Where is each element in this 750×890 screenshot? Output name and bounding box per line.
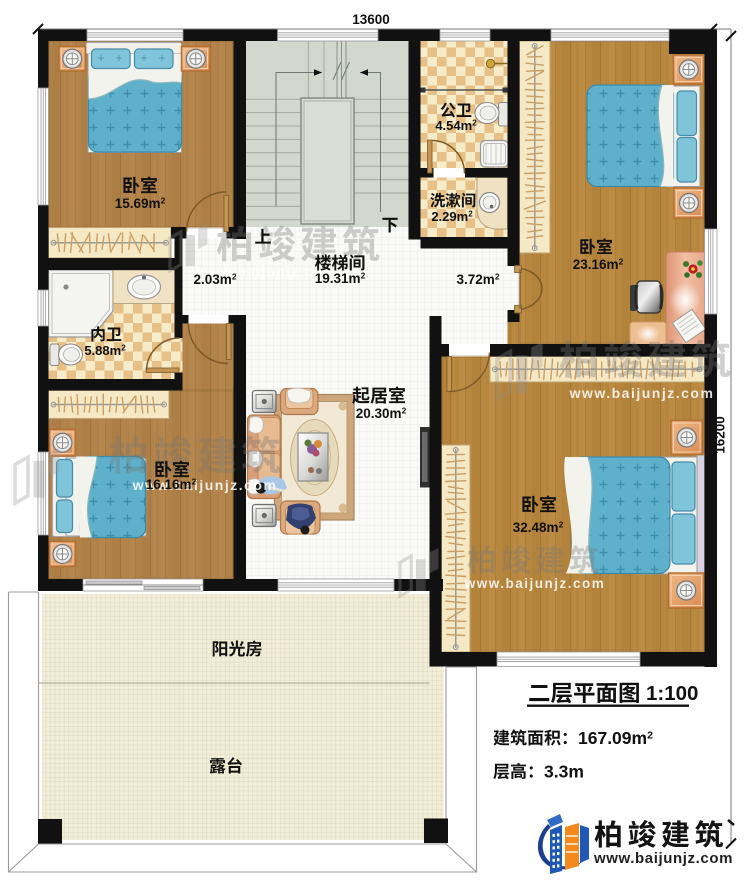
svg-text:www.baijunjz.com: www.baijunjz.com [593, 850, 733, 867]
svg-text:167.09m2: 167.09m2 [578, 728, 653, 748]
svg-text:20.30m2: 20.30m2 [356, 405, 407, 421]
svg-text:1:100: 1:100 [646, 682, 698, 705]
svg-text:16.16m2: 16.16m2 [146, 476, 197, 492]
svg-text:5.88m2: 5.88m2 [84, 343, 126, 358]
svg-text:19.31m2: 19.31m2 [315, 270, 366, 286]
svg-text:15.69m2: 15.69m2 [115, 195, 166, 211]
svg-text:www.baijunjz.com: www.baijunjz.com [464, 576, 606, 591]
svg-text:13600: 13600 [352, 12, 390, 27]
svg-text:16200: 16200 [713, 416, 728, 454]
svg-text:32.48m2: 32.48m2 [513, 519, 564, 535]
svg-text:3.72m2: 3.72m2 [457, 271, 500, 287]
svg-text:3.3m: 3.3m [544, 762, 584, 782]
svg-text:2.03m2: 2.03m2 [194, 271, 237, 287]
svg-text:2.29m2: 2.29m2 [431, 209, 473, 224]
svg-text:www.baijunjz.com: www.baijunjz.com [569, 385, 715, 401]
svg-text:4.54m2: 4.54m2 [435, 118, 477, 133]
svg-text:23.16m2: 23.16m2 [573, 256, 624, 272]
